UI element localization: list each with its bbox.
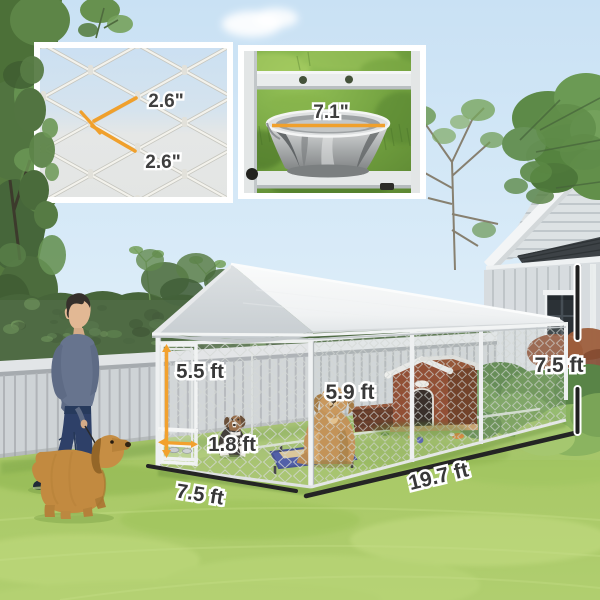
svg-text:7.5 ft: 7.5 ft: [534, 354, 583, 377]
svg-text:2.6": 2.6": [148, 91, 183, 112]
svg-text:1.8 ft: 1.8 ft: [208, 433, 256, 456]
svg-text:7.1": 7.1": [313, 102, 348, 123]
svg-text:5.9 ft: 5.9 ft: [325, 381, 374, 404]
svg-text:5.5 ft: 5.5 ft: [176, 360, 224, 383]
svg-text:2.6": 2.6": [145, 152, 180, 173]
